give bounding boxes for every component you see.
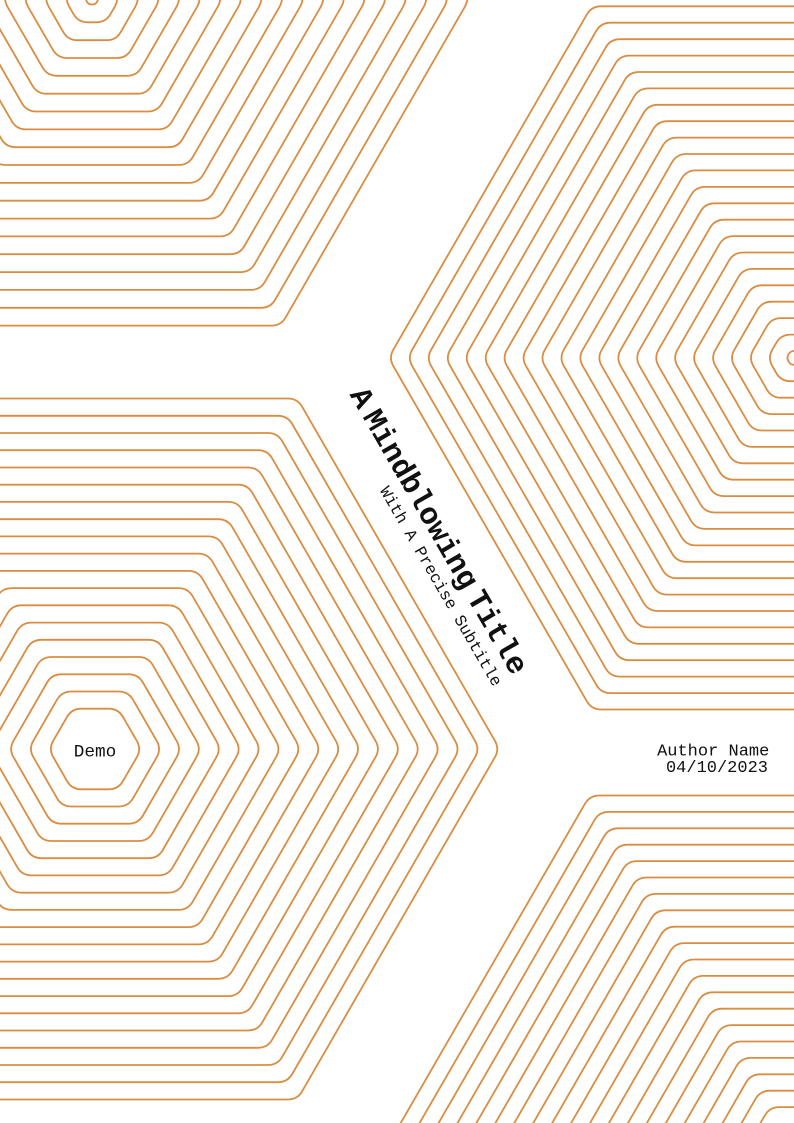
svg-text:Demo: Demo xyxy=(74,743,116,763)
svg-text:04/10/2023: 04/10/2023 xyxy=(666,759,768,778)
